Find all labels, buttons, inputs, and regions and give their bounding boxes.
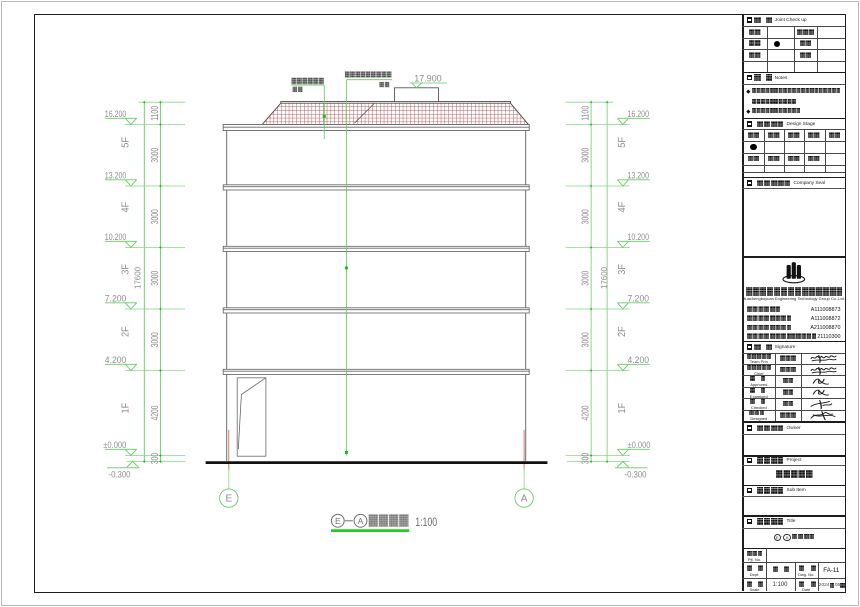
svg-text:±0.000: ±0.000 [103,440,126,451]
svg-text:4F: 4F [119,202,131,213]
svg-text:3000: 3000 [580,209,591,224]
svg-text:16.200: 16.200 [628,109,650,120]
svg-text:3F: 3F [119,264,131,275]
svg-text:10.200: 10.200 [628,232,650,243]
svg-text:3000: 3000 [580,147,591,162]
svg-text:2F: 2F [119,326,131,337]
svg-text:4.200: 4.200 [628,355,650,366]
svg-text:4200: 4200 [580,405,591,420]
svg-text:300: 300 [150,453,161,465]
svg-text:300: 300 [580,453,591,465]
svg-text:3000: 3000 [150,332,161,347]
svg-text:-0.300: -0.300 [625,470,647,481]
svg-text:10.200: 10.200 [105,232,127,243]
svg-text:17600: 17600 [599,267,609,289]
svg-text:1100: 1100 [150,106,161,121]
svg-text:3000: 3000 [580,270,591,285]
svg-text:3000: 3000 [150,147,161,162]
svg-text:17600: 17600 [132,267,142,289]
svg-text:1:100: 1:100 [415,515,437,529]
svg-text:2F: 2F [616,326,628,337]
svg-text:A: A [521,494,528,505]
svg-text:7.200: 7.200 [628,293,650,304]
svg-text:5F: 5F [616,137,628,148]
svg-text:13.200: 13.200 [105,170,127,181]
svg-text:E: E [335,516,341,526]
svg-text:17.900: 17.900 [414,73,442,84]
svg-text:7.200: 7.200 [105,293,127,304]
svg-text:3000: 3000 [580,332,591,347]
svg-text:A: A [358,516,364,526]
svg-text:4.200: 4.200 [105,355,127,366]
svg-text:3F: 3F [616,264,628,275]
svg-text:E: E [225,494,232,505]
svg-text:5F: 5F [119,137,131,148]
svg-text:3000: 3000 [150,209,161,224]
svg-text:4F: 4F [616,202,628,213]
svg-text:4200: 4200 [150,405,161,420]
svg-text:±0.000: ±0.000 [628,440,651,451]
svg-text:1F: 1F [616,403,628,414]
svg-text:13.200: 13.200 [628,170,650,181]
svg-text:16.200: 16.200 [105,109,127,120]
svg-text:-0.300: -0.300 [109,470,131,481]
svg-text:3000: 3000 [150,270,161,285]
svg-text:1100: 1100 [580,106,591,121]
svg-text:1F: 1F [119,403,131,414]
